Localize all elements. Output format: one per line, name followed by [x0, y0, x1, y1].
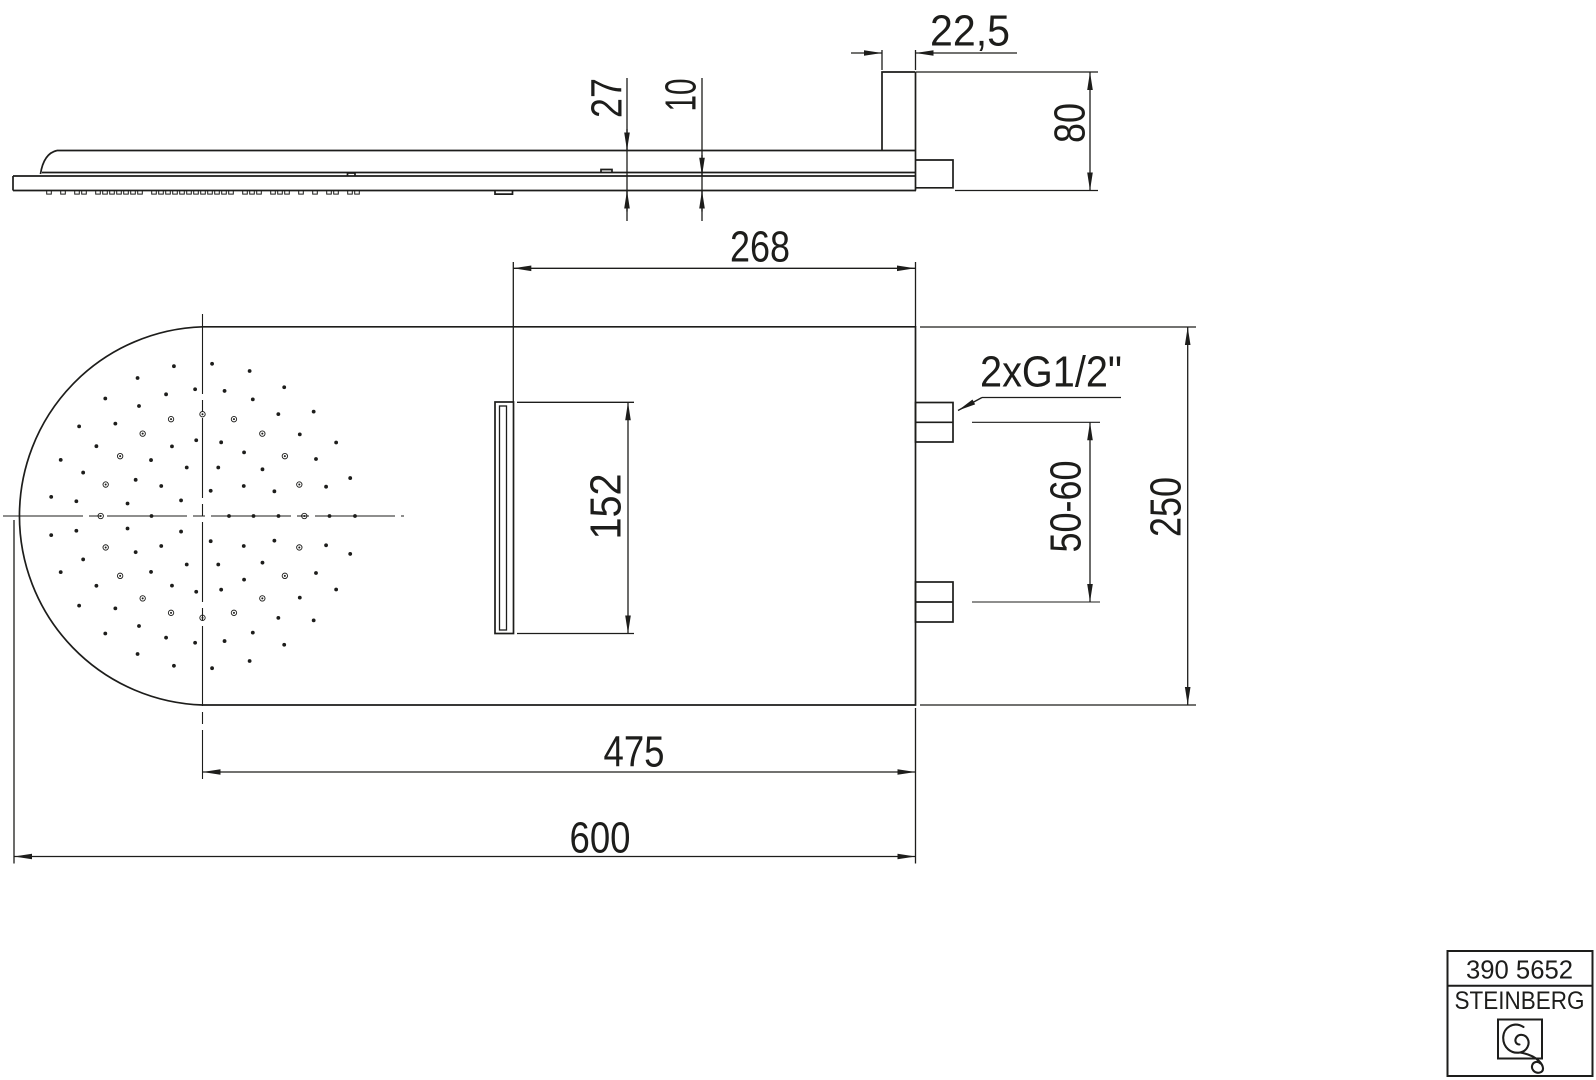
nozzle-dot: [223, 389, 227, 393]
nozzle-dot: [142, 597, 144, 599]
nozzle-dot: [348, 552, 352, 556]
nozzle-dot: [94, 444, 98, 448]
nozzle-dot: [276, 616, 280, 620]
nozzle-dot: [272, 489, 276, 493]
thread-label: 2xG1/2": [980, 348, 1122, 397]
nozzle-dot: [81, 471, 85, 475]
supply-connection-bottom: [916, 582, 954, 622]
nozzle-dot: [334, 588, 338, 592]
nozzle-dot: [194, 438, 198, 442]
nozzle-dot: [159, 484, 163, 488]
base-plate: [13, 176, 916, 191]
dimension-bracket-depth: 22,5: [851, 7, 1017, 71]
dimension-label: 10: [657, 79, 706, 112]
dimension-connection-spacing: 50-60: [1042, 422, 1091, 602]
nozzle-dot: [277, 514, 281, 518]
front-face-view: [3, 314, 1100, 779]
side-view-dimensions: 22,5 27 10 80: [583, 7, 1099, 222]
nozzle-dot: [242, 450, 246, 454]
nozzle-dot: [193, 387, 197, 391]
nozzle-dot: [210, 362, 214, 366]
nozzle-dot: [233, 418, 235, 420]
nozzle-dot: [49, 495, 53, 499]
nozzle-dot: [136, 652, 140, 656]
nozzle-dot: [219, 588, 223, 592]
nozzle-dot: [233, 612, 235, 614]
dimension-label: 80: [1046, 103, 1095, 143]
nozzle-dot: [170, 584, 174, 588]
nozzle-dot: [105, 546, 107, 548]
nozzle-dot: [77, 604, 81, 608]
nozzle-dot: [284, 455, 286, 457]
nozzle-dot: [113, 422, 117, 426]
nozzle-dot: [248, 369, 252, 373]
nozzle-dot: [328, 514, 332, 518]
nozzle-dot: [94, 584, 98, 588]
waterfall-outlet: [495, 402, 514, 634]
nozzle-dot: [282, 385, 286, 389]
nozzle-dot: [185, 563, 189, 567]
nozzle-dot: [282, 643, 286, 647]
dimension-label: 50-60: [1042, 461, 1091, 553]
nozzle-dot: [179, 499, 183, 503]
front-view-dimensions: 268 152 2xG1/2" 50-60 250 475: [14, 223, 1196, 864]
nozzle-dot: [251, 631, 255, 635]
nozzle-dot: [172, 364, 176, 368]
nozzle-dot: [113, 606, 117, 610]
dimension-label: 268: [730, 223, 790, 272]
technical-drawing: 22,5 27 10 80: [0, 0, 1596, 1080]
nozzle-dot: [242, 578, 246, 582]
nozzle-dot: [227, 514, 231, 518]
nozzle-dot: [284, 575, 286, 577]
nozzle-dot: [193, 641, 197, 645]
nozzle-dot: [164, 392, 168, 396]
dimension-outlet-to-edge: 268: [513, 223, 915, 404]
nozzle-dot: [261, 597, 263, 599]
nozzle-dot: [119, 575, 121, 577]
nozzle-dot: [136, 376, 140, 380]
nozzle-dot: [314, 571, 318, 575]
nozzle-dot: [137, 404, 141, 408]
nozzle-dot: [59, 458, 63, 462]
nozzle-dot: [298, 546, 300, 548]
nozzle-dot: [248, 659, 252, 663]
nozzle-dot: [194, 590, 198, 594]
cover-left-curve: [41, 151, 58, 175]
nozzle-dot: [185, 466, 189, 470]
nozzle-dot: [298, 484, 300, 486]
nozzle-dot: [209, 489, 213, 493]
nozzle-dot: [251, 397, 255, 401]
nozzle-dot: [272, 539, 276, 543]
dimension-label: 475: [604, 728, 665, 777]
nozzle-dot: [134, 550, 138, 554]
brand-name: STEINBERG: [1455, 987, 1585, 1015]
nozzle-dot: [100, 515, 102, 517]
steinberg-logo-icon: [1498, 1020, 1543, 1073]
article-number: 390 5652: [1466, 955, 1573, 985]
dimension-label: 600: [570, 814, 631, 863]
nozzle-dot: [172, 664, 176, 668]
nozzle-dot: [126, 527, 130, 531]
nozzle-dot: [312, 410, 316, 414]
nozzle-dot: [103, 397, 107, 401]
dimension-outlet-length: 152: [517, 402, 634, 633]
nozzle-dot: [334, 441, 338, 445]
dimension-head-thickness: 27: [583, 78, 632, 221]
title-block: 390 5652 STEINBERG: [1448, 951, 1593, 1076]
nozzle-dot: [126, 502, 130, 506]
nozzle-dot: [170, 445, 174, 449]
nozzle-dot: [219, 440, 223, 444]
nozzle-dot: [242, 484, 246, 488]
dimension-label: 22,5: [930, 7, 1010, 56]
nozzle-dot: [159, 544, 163, 548]
nozzle-dot: [179, 530, 183, 534]
nozzle-dot: [103, 632, 107, 636]
nozzle-dot: [49, 533, 53, 537]
nozzle-dot: [209, 539, 213, 543]
nozzle-dot: [170, 612, 172, 614]
nozzle-dot: [298, 432, 302, 436]
nozzle-dot: [324, 485, 328, 489]
nozzle-dot: [303, 515, 305, 517]
nozzle-dot: [314, 457, 318, 461]
nozzle-dot: [81, 558, 85, 562]
nozzle-dot: [252, 514, 256, 518]
nozzle-dot: [164, 636, 168, 640]
side-profile-view: [13, 72, 953, 194]
dimension-spray-center-to-edge: 475: [203, 708, 916, 864]
dimension-label: 27: [583, 78, 632, 118]
nozzle-dot: [202, 617, 204, 619]
nozzle-dot: [119, 455, 121, 457]
nozzle-dot: [261, 433, 263, 435]
nozzle-dot: [210, 666, 214, 670]
nozzle-dot: [312, 618, 316, 622]
nozzle-dot: [149, 570, 153, 574]
nozzle-dot: [298, 596, 302, 600]
nozzle-dot: [276, 412, 280, 416]
nozzle-dot: [134, 478, 138, 482]
dimension-plate-thickness: 10: [657, 78, 706, 221]
nozzle-dot: [353, 514, 357, 518]
dimension-bracket-height: 80: [916, 72, 1098, 191]
nozzle-dot: [261, 561, 265, 565]
drawing-page: 22,5 27 10 80: [0, 0, 1596, 1080]
dimension-label: 250: [1142, 477, 1191, 537]
nozzle-dot: [74, 499, 78, 503]
nozzle-dot: [324, 543, 328, 547]
nozzle-dot: [216, 466, 220, 470]
nozzle-dot: [261, 467, 265, 471]
nozzle-dot: [223, 639, 227, 643]
nozzle-dot: [105, 484, 107, 486]
nozzle-dot: [149, 458, 153, 462]
nozzle-dot: [59, 570, 63, 574]
nozzle-dot: [150, 514, 154, 518]
nozzle-dot: [348, 476, 352, 480]
nozzle-dot: [202, 413, 204, 415]
thread-callout: 2xG1/2": [958, 348, 1122, 411]
wall-bracket: [882, 72, 916, 151]
nozzle-dot: [77, 424, 81, 428]
nozzle-dot: [142, 433, 144, 435]
nozzle-dot: [74, 529, 78, 533]
supply-connection-top: [916, 403, 954, 443]
bracket-foot: [916, 160, 953, 188]
nozzle-dot: [242, 544, 246, 548]
nozzle-dot: [216, 563, 220, 567]
nozzle-dot: [170, 418, 172, 420]
dimension-label: 152: [582, 474, 631, 540]
nozzle-dot: [137, 624, 141, 628]
